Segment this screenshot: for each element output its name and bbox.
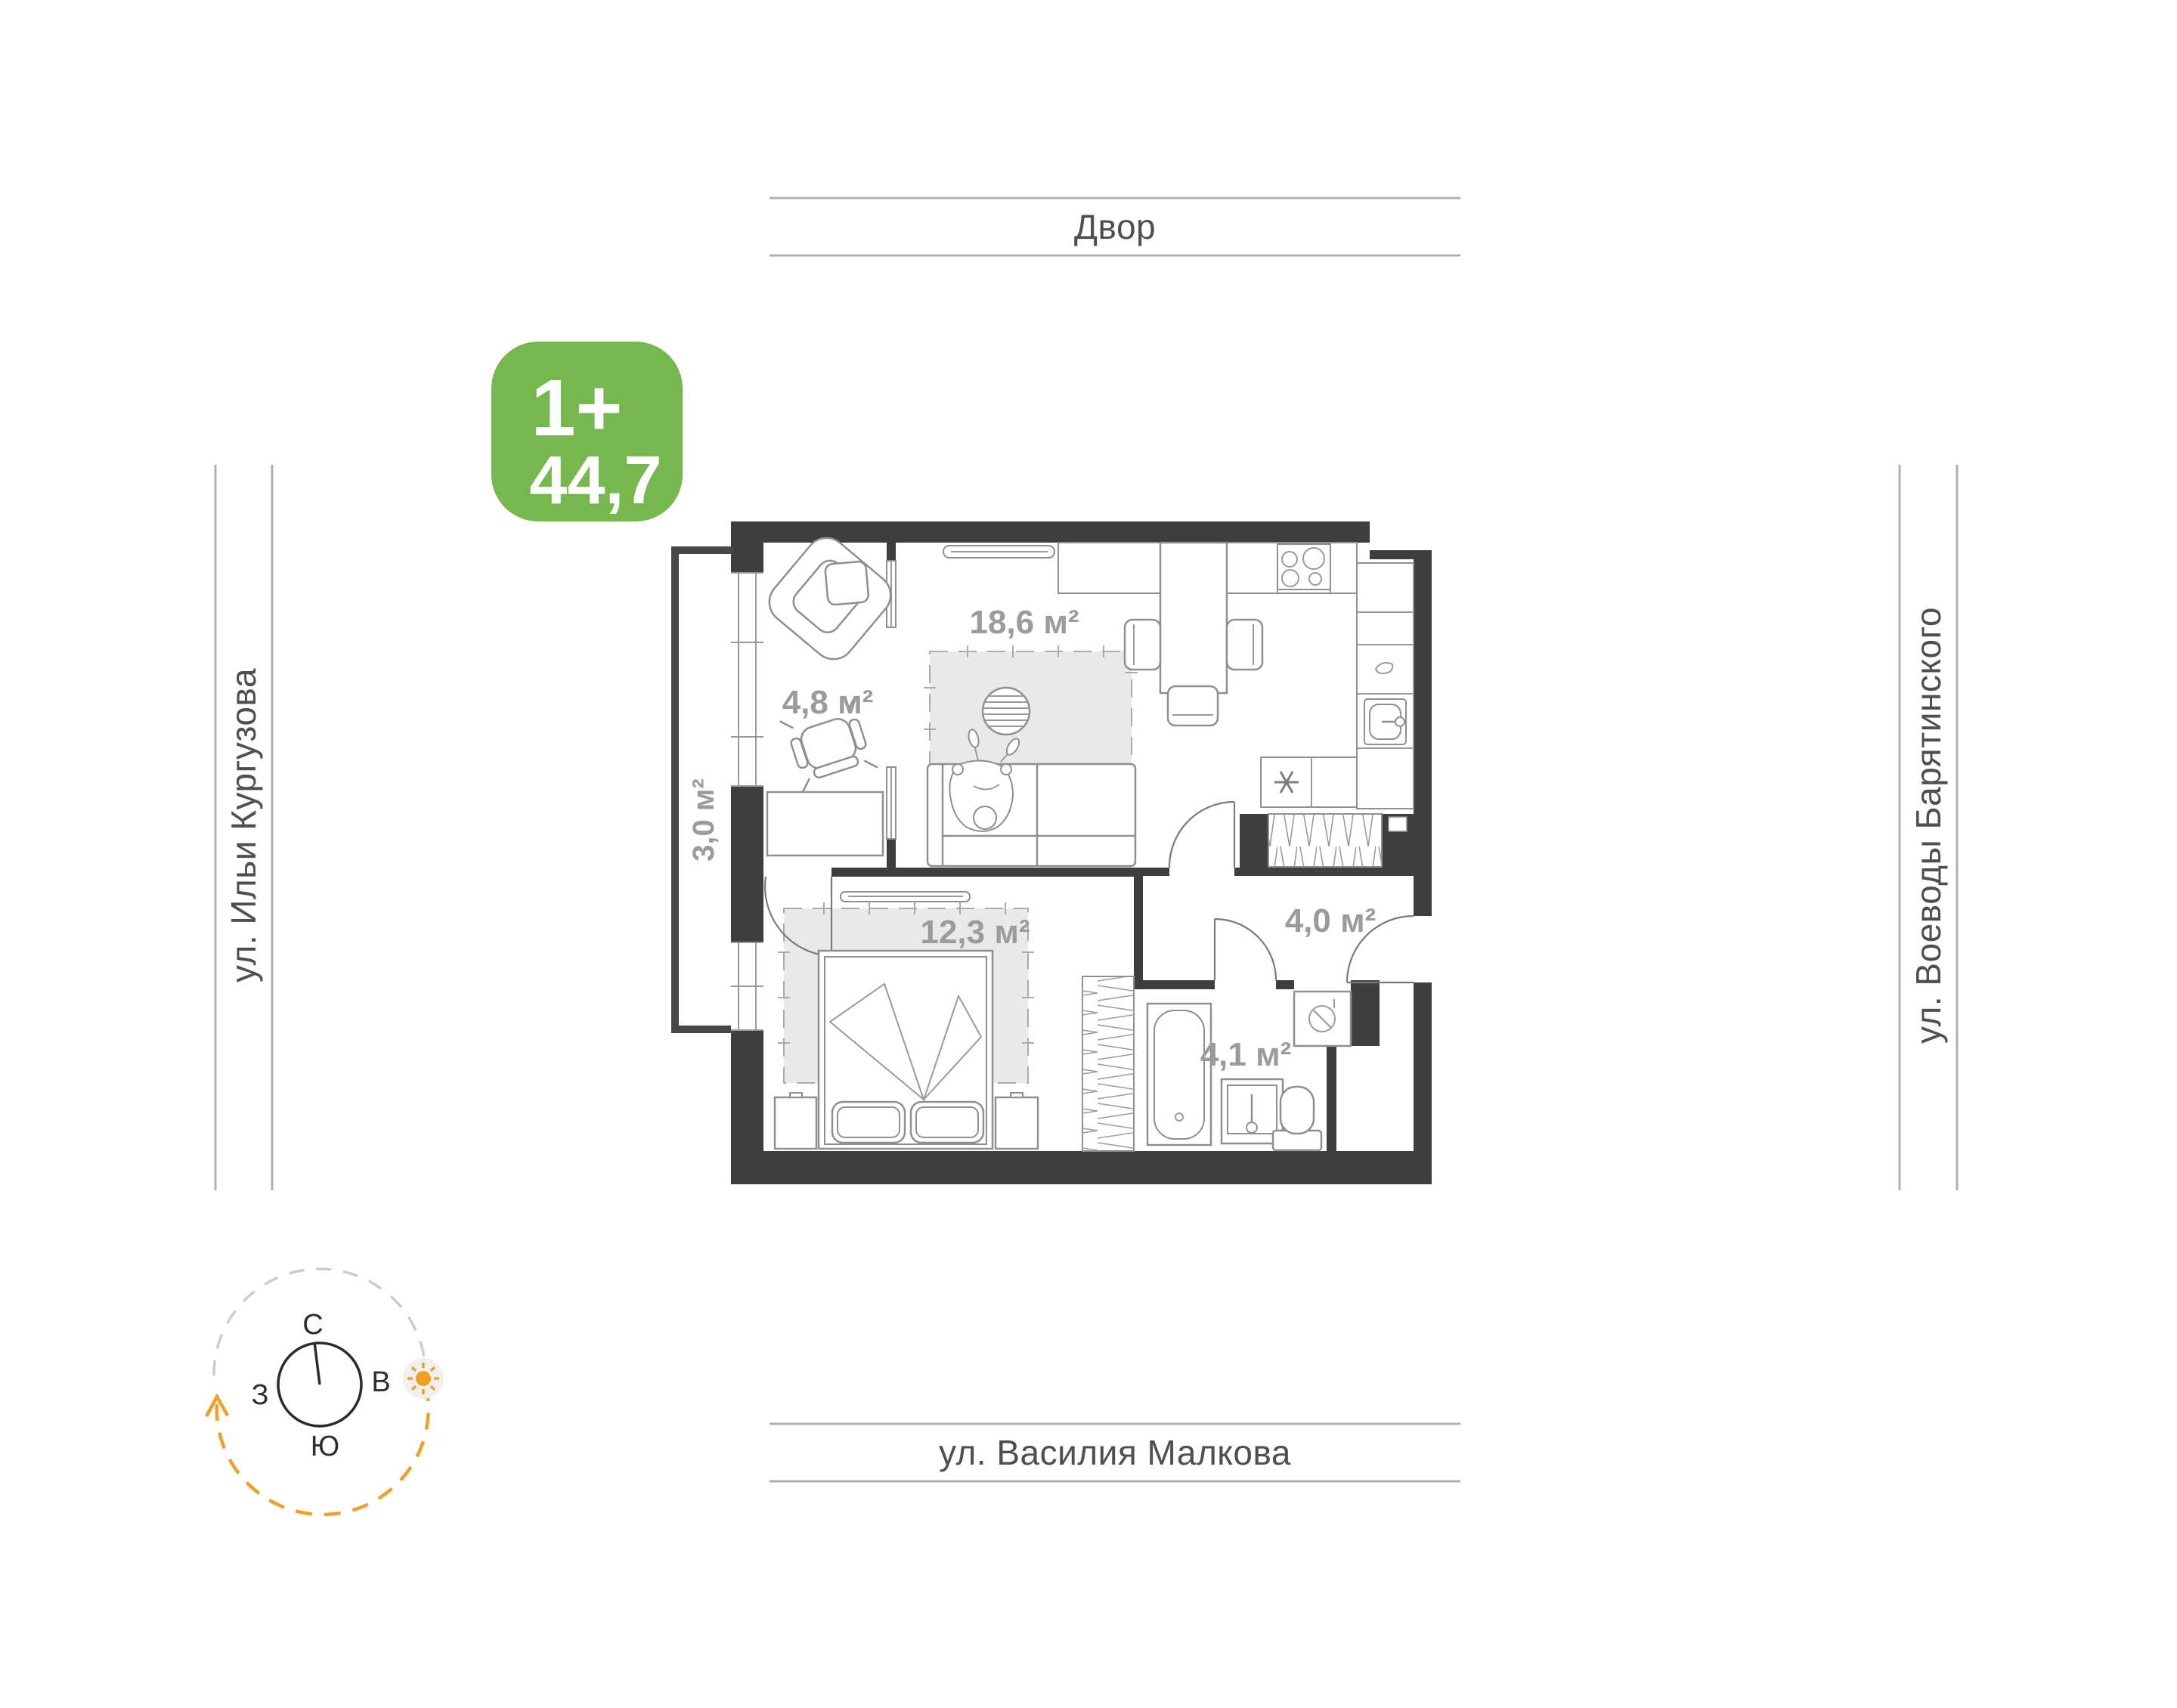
bedroom-tv <box>841 892 970 902</box>
area-label-bedroom: 12,3 м² <box>920 914 1030 951</box>
floorplan: 18,6 м² 4,8 м² 3,0 м² 12,3 м² 4,0 м² 4,1… <box>671 521 1432 1184</box>
street-label-right: ул. Воеводы Барятинского <box>1900 465 1957 1190</box>
wall-left-a <box>731 521 763 573</box>
wall-bedroom-hallway <box>1134 868 1143 989</box>
study-armchair <box>760 528 900 668</box>
partition-study-stub-top <box>887 543 896 561</box>
living-tv-console <box>943 546 1054 558</box>
study-window <box>731 573 763 786</box>
area-label-bathroom: 4,1 м² <box>1200 1036 1292 1073</box>
balcony-wall-left <box>671 546 679 1033</box>
wall-washer-nook <box>1351 980 1380 1046</box>
living-room-rug <box>924 645 1138 767</box>
compass-west: З <box>252 1379 269 1411</box>
floorplan-page: Двор ул. Василия Малкова ул. Ильи Кургуз… <box>0 0 2177 1708</box>
wall-left-c <box>731 1030 763 1184</box>
apartment-badge: 1+ 44,7 <box>491 342 683 521</box>
dining-chair-right <box>1227 620 1262 670</box>
area-label-balcony: 3,0 м² <box>687 778 720 862</box>
area-label-hallway: 4,0 м² <box>1285 902 1376 939</box>
dining-table <box>1160 543 1227 693</box>
badge-room-type: 1+ <box>531 364 623 453</box>
closet-side-wall <box>1240 814 1268 868</box>
washing-machine <box>1294 992 1351 1046</box>
living-pouf <box>983 688 1030 735</box>
living-hallway-door <box>1169 802 1234 868</box>
wall-bottom <box>731 1151 1432 1184</box>
hallway-closet <box>1268 814 1382 867</box>
area-label-study: 4,8 м² <box>782 684 874 721</box>
wall-hallway-a <box>1143 868 1169 876</box>
badge-total-area: 44,7 <box>529 443 661 518</box>
bedroom-window <box>731 942 763 1030</box>
street-label-left: ул. Ильи Кургузова <box>215 465 272 1190</box>
area-label-living-kitchen: 18,6 м² <box>969 604 1079 641</box>
compass-north: С <box>302 1309 323 1341</box>
partition-living-bedroom <box>831 868 1138 877</box>
bedroom-wardrobe <box>1082 976 1134 1151</box>
closet-jamb <box>1389 817 1407 831</box>
bed <box>819 951 993 1149</box>
compass: С В З Ю <box>206 1269 444 1515</box>
street-bottom-text: ул. Василия Малкова <box>939 1433 1291 1472</box>
kitchen-stove <box>1277 544 1330 589</box>
street-left-text: ул. Ильи Кургузова <box>224 668 263 982</box>
street-label-top: Двор <box>770 198 1460 255</box>
partition-study-stub-bottom <box>887 839 896 869</box>
nightstand-right <box>996 1093 1038 1149</box>
dining-chair-left <box>1125 620 1160 670</box>
wall-left-b <box>731 786 763 942</box>
bathtub <box>1147 1004 1211 1145</box>
bathroom-door <box>1215 919 1276 980</box>
wall-hallway-b <box>1234 868 1414 876</box>
kitchen-right-counter <box>1357 563 1414 809</box>
kitchen-sink <box>1364 699 1406 744</box>
compass-east: В <box>371 1366 390 1398</box>
wall-bathroom-top-a <box>1143 980 1215 989</box>
street-right-text: ул. Воеводы Барятинского <box>1909 607 1948 1044</box>
wall-bathroom-top-b <box>1276 980 1294 989</box>
balcony-wall-top <box>671 546 733 554</box>
wall-bathroom-right <box>1327 1046 1336 1151</box>
street-top-text: Двор <box>1074 207 1156 246</box>
study-desk <box>767 792 883 856</box>
nightstand-left <box>775 1093 816 1149</box>
compass-south: Ю <box>311 1431 339 1462</box>
balcony-wall-bottom <box>671 1026 733 1033</box>
sun-icon <box>407 1363 439 1394</box>
street-label-bottom: ул. Василия Малкова <box>770 1424 1460 1481</box>
wall-right-upper <box>1414 550 1432 916</box>
dining-chair-bottom <box>1168 686 1218 726</box>
